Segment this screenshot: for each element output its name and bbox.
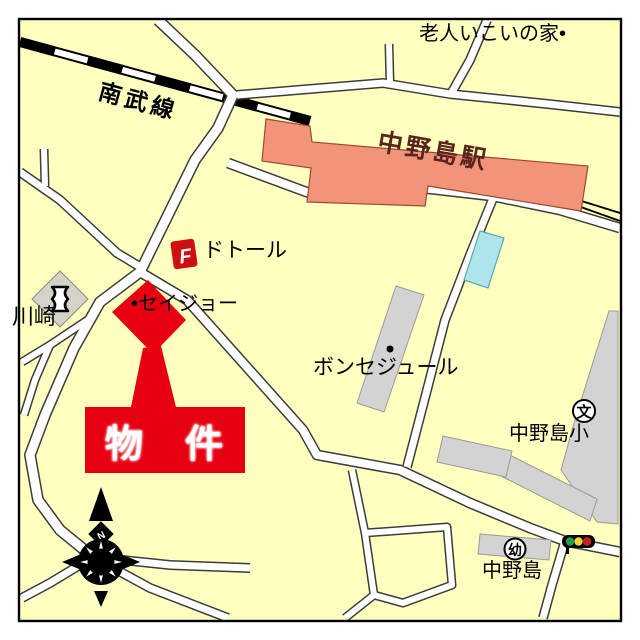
kawasaki-label: 川崎	[12, 306, 56, 328]
property-label-box: 物 件	[85, 407, 245, 473]
location-dot-icon	[387, 346, 394, 353]
road-north-stub	[389, 44, 390, 83]
doutor-label: ドトール	[203, 240, 287, 261]
bonsejour-label: ボンセジュール	[313, 357, 459, 378]
elder-house-label: 老人いこいの家•	[419, 24, 566, 44]
nakanoshima-label: 中野島	[482, 561, 542, 581]
property-label: 物 件	[105, 413, 225, 468]
doutor-logo-icon: F	[170, 238, 198, 269]
kindergarten-symbol-icon: 幼	[505, 539, 526, 560]
road-west-stub	[44, 149, 45, 186]
map-canvas: F 文 幼 N	[0, 0, 640, 640]
school-symbol-icon: 文	[573, 400, 595, 422]
elementary-school-label: 中野島小	[509, 424, 589, 444]
map-drawing: F 文 幼 N	[0, 0, 640, 640]
svg-text:幼: 幼	[508, 542, 522, 558]
seijo-label: •セイジョー	[131, 294, 238, 314]
svg-text:文: 文	[576, 403, 592, 421]
